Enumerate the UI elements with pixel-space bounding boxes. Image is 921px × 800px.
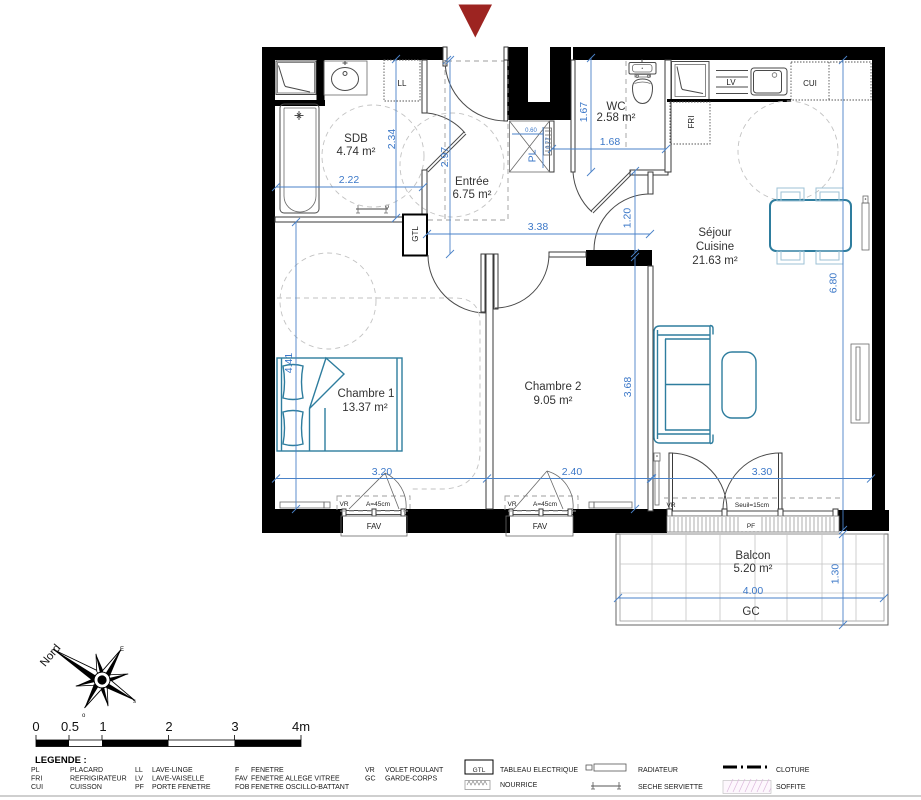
svg-text:LV: LV	[726, 78, 736, 87]
svg-text:A=45cm: A=45cm	[533, 501, 557, 508]
svg-text:3.30: 3.30	[752, 466, 773, 478]
svg-text:FOB: FOB	[235, 784, 250, 791]
svg-text:VR: VR	[339, 501, 348, 508]
svg-text:1.67: 1.67	[578, 102, 590, 123]
svg-text:0: 0	[32, 719, 39, 734]
svg-text:2.40: 2.40	[562, 466, 583, 478]
svg-text:PLACARD: PLACARD	[70, 767, 103, 774]
svg-text:FAV: FAV	[235, 776, 248, 783]
svg-text:4.74 m²: 4.74 m²	[337, 146, 376, 158]
svg-text:GC: GC	[742, 606, 759, 618]
svg-text:VOLET ROULANT: VOLET ROULANT	[385, 767, 444, 774]
svg-text:A=45cm: A=45cm	[366, 501, 390, 508]
svg-text:13.37 m²: 13.37 m²	[342, 402, 388, 414]
svg-text:FENETRE ALLEGE VITREE: FENETRE ALLEGE VITREE	[251, 776, 340, 783]
svg-text:2: 2	[165, 719, 172, 734]
svg-text:2.97: 2.97	[439, 147, 451, 168]
svg-text:FENETRE OSCILLO-BATTANT: FENETRE OSCILLO-BATTANT	[251, 784, 350, 791]
svg-text:LAVE-LINGE: LAVE-LINGE	[152, 767, 193, 774]
svg-text:Chambre 1: Chambre 1	[338, 388, 395, 400]
svg-text:1.30: 1.30	[830, 564, 842, 585]
svg-text:LV: LV	[135, 776, 143, 783]
svg-text:3.68: 3.68	[622, 377, 634, 398]
svg-text:SDB: SDB	[344, 133, 368, 145]
svg-text:Chambre 2: Chambre 2	[525, 381, 582, 393]
svg-text:FRI: FRI	[31, 776, 42, 783]
svg-text:3.20: 3.20	[372, 466, 393, 478]
svg-text:GC: GC	[365, 776, 376, 783]
svg-text:FRI: FRI	[687, 116, 696, 129]
svg-text:CUISSON: CUISSON	[70, 784, 102, 791]
svg-text:LL: LL	[135, 767, 143, 774]
svg-text:Séjour: Séjour	[698, 227, 731, 239]
svg-text:1.68: 1.68	[600, 136, 621, 148]
svg-text:PF: PF	[135, 784, 144, 791]
svg-text:E: E	[120, 647, 124, 653]
svg-text:0.5: 0.5	[61, 719, 79, 734]
svg-text:CLOTURE: CLOTURE	[776, 767, 810, 774]
svg-text:9.05 m²: 9.05 m²	[534, 395, 573, 407]
svg-text:FAV: FAV	[367, 522, 382, 531]
svg-text:GARDE-CORPS: GARDE-CORPS	[385, 776, 437, 783]
svg-text:1.20: 1.20	[622, 208, 634, 229]
svg-text:TABLEAU ELECTRIQUE: TABLEAU ELECTRIQUE	[500, 767, 578, 774]
svg-text:2.22: 2.22	[339, 174, 360, 186]
svg-text:F: F	[235, 767, 239, 774]
svg-text:VR: VR	[666, 502, 675, 509]
svg-text:LAVE-VAISELLE: LAVE-VAISELLE	[152, 776, 205, 783]
svg-text:6.80: 6.80	[828, 273, 840, 294]
svg-text:2.34: 2.34	[386, 129, 398, 150]
svg-text:0.77: 0.77	[546, 137, 552, 149]
svg-text:3: 3	[231, 719, 238, 734]
svg-text:21.63 m²: 21.63 m²	[692, 255, 738, 267]
svg-text:RADIATEUR: RADIATEUR	[638, 767, 678, 774]
svg-text:CUI: CUI	[803, 79, 817, 88]
svg-text:PF: PF	[747, 523, 755, 530]
svg-text:GTL: GTL	[473, 767, 486, 774]
svg-text:Entrée: Entrée	[455, 176, 489, 188]
svg-text:4m: 4m	[292, 719, 310, 734]
svg-text:VR: VR	[365, 767, 375, 774]
svg-text:4.41: 4.41	[283, 353, 295, 374]
svg-text:Cuisine: Cuisine	[696, 241, 734, 253]
svg-text:SECHE SERVIETTE: SECHE SERVIETTE	[638, 784, 703, 791]
svg-text:GTL: GTL	[411, 226, 420, 242]
svg-text:CUI: CUI	[31, 784, 43, 791]
svg-text:Seuil=15cm: Seuil=15cm	[735, 502, 769, 509]
svg-text:0.60: 0.60	[525, 128, 537, 134]
svg-text:s: s	[133, 699, 136, 705]
svg-text:PORTE FENETRE: PORTE FENETRE	[152, 784, 211, 791]
svg-text:PL: PL	[527, 149, 539, 162]
svg-text:3.38: 3.38	[528, 221, 549, 233]
svg-text:LEGENDE :: LEGENDE :	[35, 755, 87, 766]
svg-text:2.58 m²: 2.58 m²	[597, 112, 636, 124]
svg-text:SOFFITE: SOFFITE	[776, 784, 806, 791]
svg-text:REFRIGIRATEUR: REFRIGIRATEUR	[70, 776, 127, 783]
svg-text:FENETRE: FENETRE	[251, 767, 284, 774]
svg-text:1: 1	[99, 719, 106, 734]
svg-text:Balcon: Balcon	[735, 550, 770, 562]
svg-text:LL: LL	[398, 79, 407, 88]
svg-text:4.00: 4.00	[743, 585, 764, 597]
svg-text:FAV: FAV	[533, 522, 548, 531]
svg-text:PL: PL	[31, 767, 40, 774]
svg-text:5.20 m²: 5.20 m²	[734, 563, 773, 575]
svg-text:6.75 m²: 6.75 m²	[453, 189, 492, 201]
svg-text:NOURRICE: NOURRICE	[500, 782, 538, 789]
